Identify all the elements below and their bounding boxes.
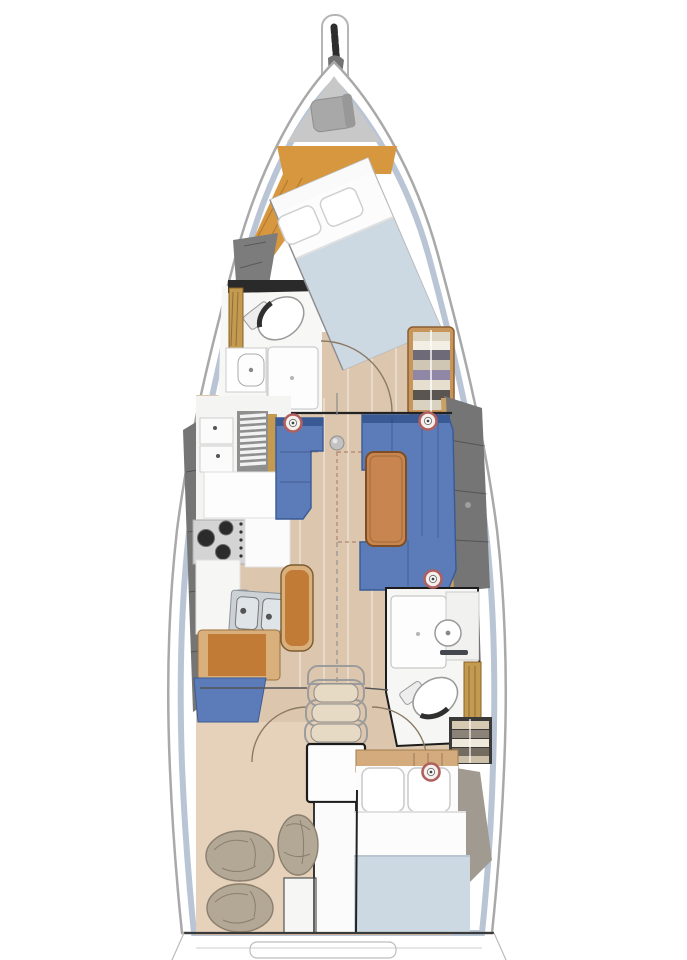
marker-icon <box>420 413 437 430</box>
aft-sink-drain <box>446 631 451 636</box>
aft-faucet-icon <box>440 650 468 655</box>
yacht-floorplan <box>0 0 687 960</box>
galley-cabinet-door <box>200 418 233 444</box>
burner-icon <box>219 521 233 535</box>
marker-icon <box>285 415 302 432</box>
fwd-shower-drain <box>290 376 294 380</box>
fridge-louver <box>237 411 268 473</box>
aft-shower-drain <box>416 632 420 636</box>
galley-worktop <box>204 472 277 518</box>
fwd-wood-band <box>277 146 397 174</box>
starboard-settee <box>360 415 456 590</box>
floorplan-svg <box>0 0 687 960</box>
sink-basin <box>235 596 259 629</box>
galley-counter-mid <box>245 518 290 567</box>
galley-cabinet-door <box>200 446 233 472</box>
center-bench-cushion <box>285 570 309 646</box>
gear-bag <box>278 815 318 875</box>
swim-ladder-icon <box>250 942 396 958</box>
stove <box>193 520 245 564</box>
forward-head <box>218 280 322 412</box>
locker-hatch <box>284 878 316 933</box>
transom <box>172 933 506 960</box>
gear-bag <box>207 884 273 932</box>
aft-berth-sheet <box>354 812 466 858</box>
marker-icon <box>425 571 442 588</box>
pillow-icon <box>362 768 404 812</box>
saloon-table <box>366 452 406 546</box>
burner-icon <box>216 545 231 560</box>
gear-bag <box>206 831 274 881</box>
engine-column <box>314 802 356 933</box>
step-tread <box>314 684 358 702</box>
center-bench <box>281 565 313 651</box>
nav-seat <box>194 678 266 722</box>
marker-icon <box>423 764 440 781</box>
nav-bench <box>198 630 280 680</box>
burner-icon <box>198 530 215 547</box>
step-tread <box>312 704 360 722</box>
fwd-sink-drain <box>249 368 253 372</box>
aft-berth-mattress <box>354 855 470 933</box>
aft-cabin-partition <box>356 790 357 933</box>
step-tread <box>311 724 361 742</box>
mast-foot-icon <box>330 436 344 450</box>
bench-cushion <box>208 634 266 676</box>
